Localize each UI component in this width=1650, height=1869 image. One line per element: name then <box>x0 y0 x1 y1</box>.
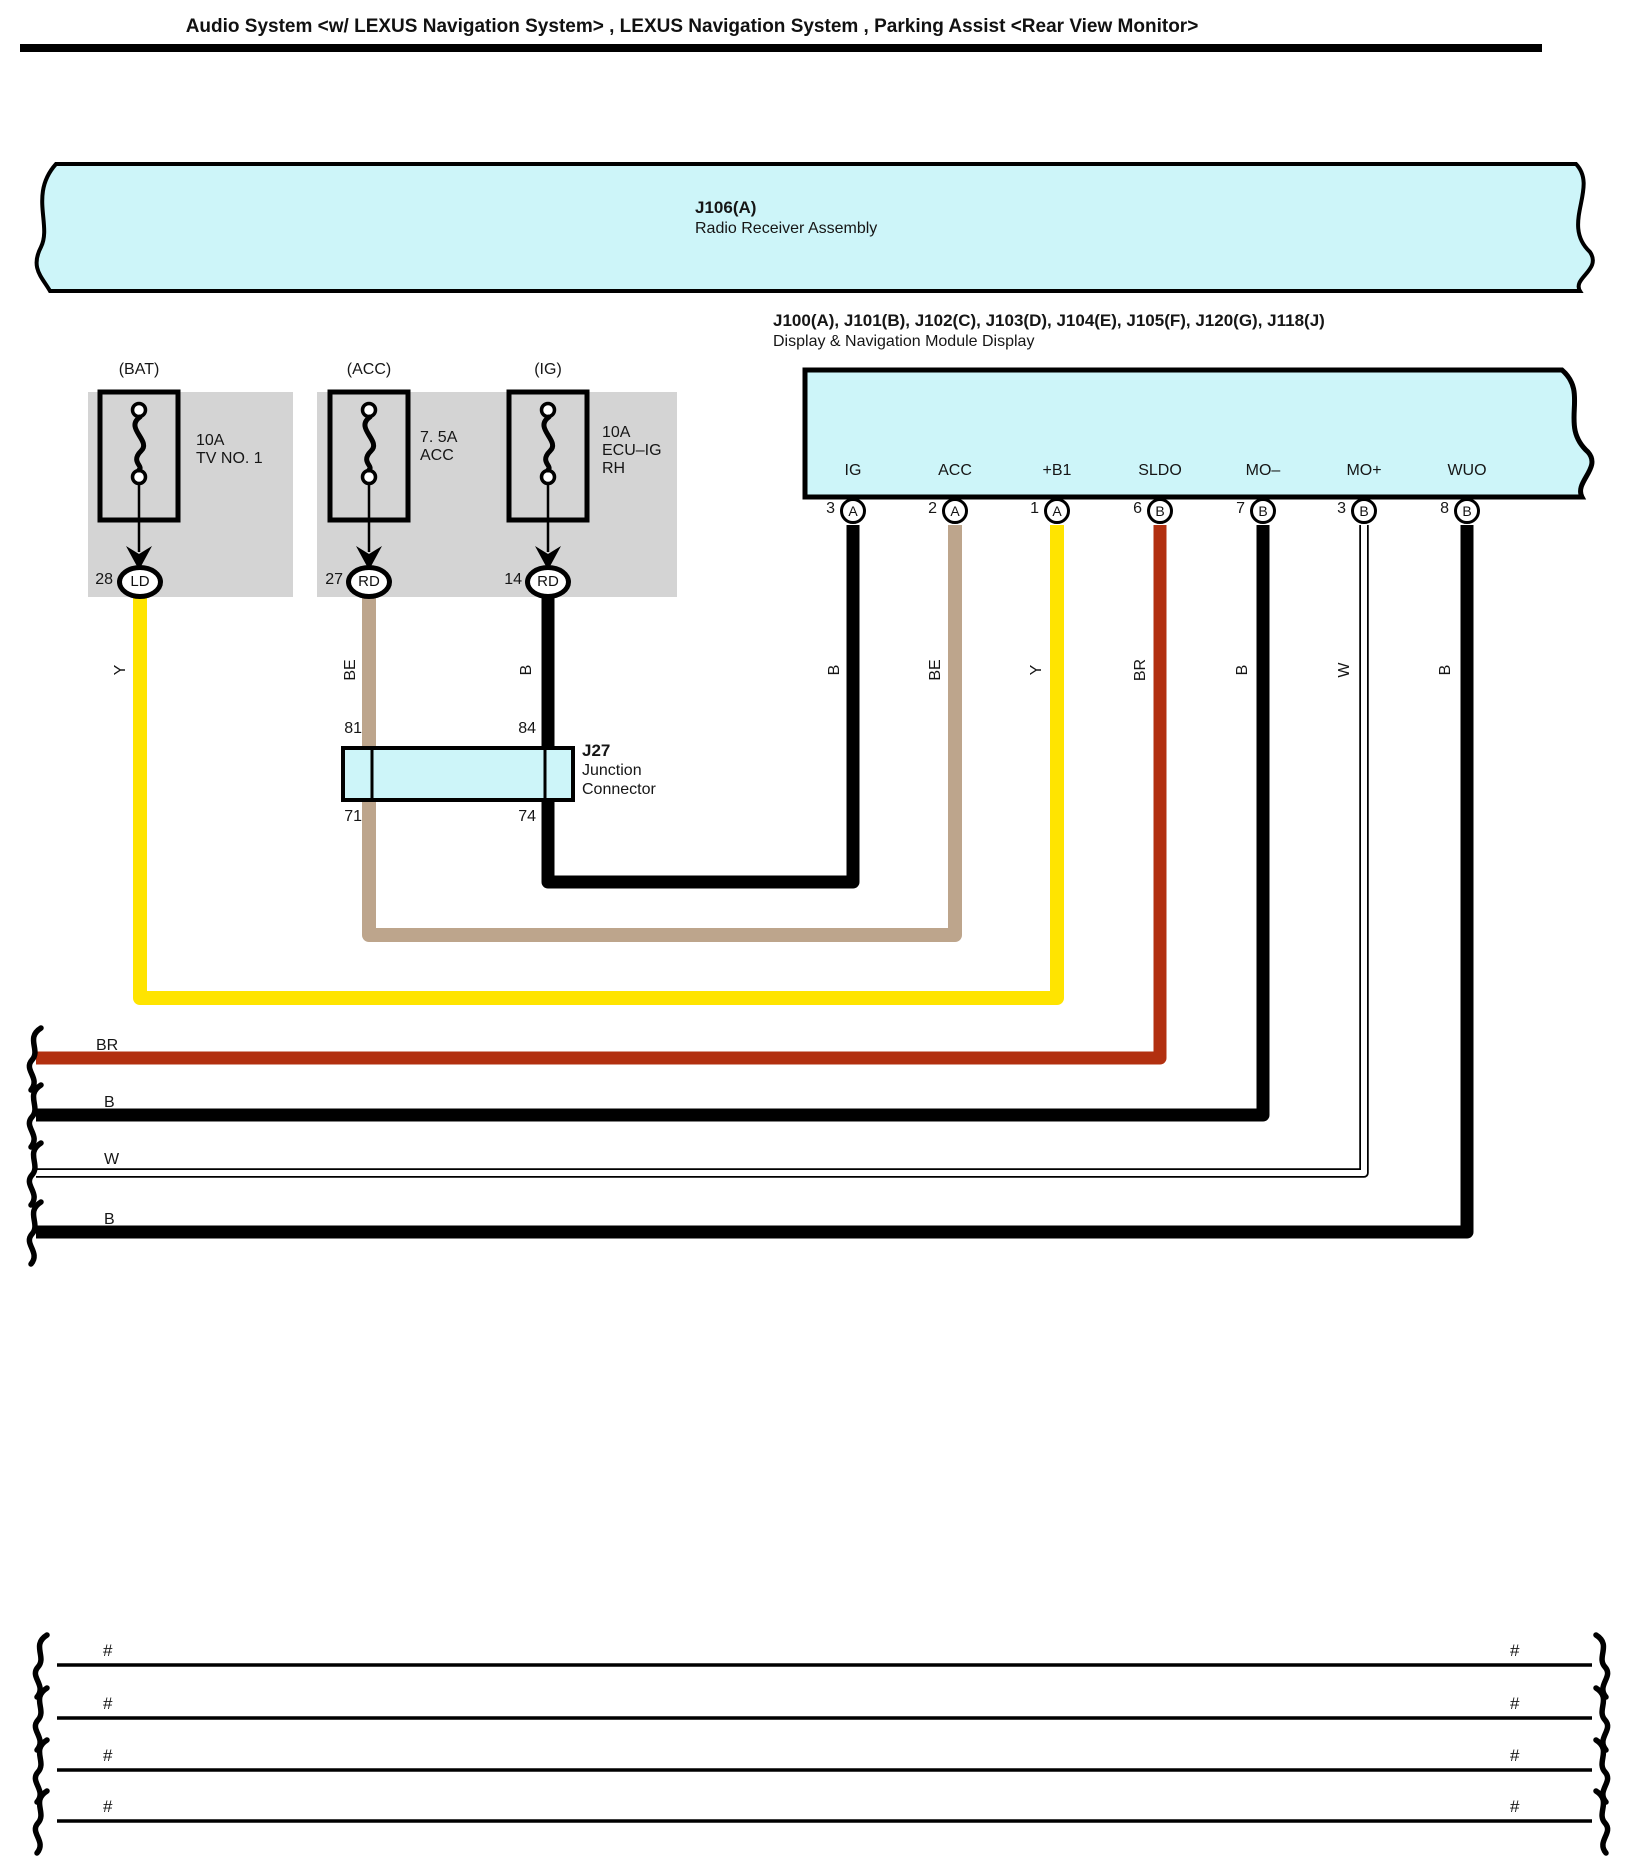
fuse-rating: 10A <box>602 424 630 442</box>
hash-mark: # <box>103 1694 112 1714</box>
title-rule <box>20 44 1542 52</box>
offpage-wire-label-w: W <box>104 1151 119 1169</box>
wire-color-code-be: BE <box>927 648 945 692</box>
connector-circle-b: B <box>1351 498 1377 524</box>
connector-circle-a: A <box>1044 498 1070 524</box>
junction-type: Connector <box>582 781 656 799</box>
hash-mark: # <box>103 1641 112 1661</box>
fuse-name: ACC <box>420 447 454 465</box>
connector-circle-b: B <box>1147 498 1173 524</box>
wire-b-ig <box>548 525 853 882</box>
wire-b-mo-minus <box>36 525 1263 1115</box>
fuse-rating: 10A <box>196 432 224 450</box>
junction-pin-74: 74 <box>506 808 536 826</box>
junction-pin-84: 84 <box>506 720 536 738</box>
pin-label-b1: +B1 <box>1017 462 1097 480</box>
terminal-number: 28 <box>77 571 113 589</box>
pin-number: 8 <box>1425 500 1449 518</box>
hash-mark: # <box>1510 1746 1519 1766</box>
fuse-acc-symbol <box>330 392 408 570</box>
banner-code: J106(A) <box>695 198 756 218</box>
diagram-canvas <box>0 0 1650 1869</box>
offpage-wire-label-b: B <box>104 1211 115 1229</box>
fuse-name: ECU–IG <box>602 442 662 460</box>
offpage-wire-label-br: BR <box>96 1037 118 1055</box>
page-title: Audio System <w/ LEXUS Navigation System… <box>0 16 1384 38</box>
terminal-number: 14 <box>486 571 522 589</box>
pin-label-mo-minus: MO– <box>1223 462 1303 480</box>
hash-mark: # <box>1510 1641 1519 1661</box>
wire-color-code-be: BE <box>342 648 360 692</box>
pin-number: 3 <box>1322 500 1346 518</box>
pin-label-acc: ACC <box>915 462 995 480</box>
cut-mark <box>35 1791 47 1853</box>
hash-mark: # <box>1510 1797 1519 1817</box>
terminal-oval-ld: LD <box>117 565 163 599</box>
pin-number: 7 <box>1221 500 1245 518</box>
wire-be-acc <box>369 525 955 935</box>
pin-number: 3 <box>811 500 835 518</box>
display-module-codes: J100(A), J101(B), J102(C), J103(D), J104… <box>773 311 1325 331</box>
wire-color-code-br: BR <box>1132 648 1150 692</box>
connector-circle-a: A <box>840 498 866 524</box>
fuse-bat-symbol <box>100 392 178 570</box>
pin-label-mo-plus: MO+ <box>1324 462 1404 480</box>
fuse-name: RH <box>602 460 625 478</box>
hash-mark: # <box>103 1797 112 1817</box>
fuse-source-acc: (ACC) <box>329 361 409 379</box>
connector-circle-b: B <box>1454 498 1480 524</box>
connector-circle-a: A <box>942 498 968 524</box>
junction-type: Junction <box>582 762 642 780</box>
terminal-oval-rd: RD <box>525 565 571 599</box>
hash-mark: # <box>1510 1694 1519 1714</box>
junction-pin-71: 71 <box>330 808 362 826</box>
junction-pin-81: 81 <box>330 720 362 738</box>
wire-color-code-y: Y <box>112 648 130 692</box>
junction-connector-box <box>343 748 573 800</box>
fuse-source-bat: (BAT) <box>99 361 179 379</box>
wire-color-code-b: B <box>1234 648 1252 692</box>
fuse-source-ig: (IG) <box>508 361 588 379</box>
junction-code: J27 <box>582 741 610 761</box>
display-module-name: Display & Navigation Module Display <box>773 333 1034 351</box>
wire-color-code-y: Y <box>1028 648 1046 692</box>
pin-number: 6 <box>1118 500 1142 518</box>
banner-name: Radio Receiver Assembly <box>695 220 877 238</box>
pin-number: 2 <box>913 500 937 518</box>
fuse-name: TV NO. 1 <box>196 450 263 468</box>
fuse-rating: 7. 5A <box>420 429 457 447</box>
wire-color-code-b: B <box>1437 648 1455 692</box>
cut-mark <box>1596 1791 1608 1853</box>
pin-label-ig: IG <box>813 462 893 480</box>
pin-label-sldo: SLDO <box>1120 462 1200 480</box>
wire-color-code-b: B <box>826 648 844 692</box>
connector-circle-b: B <box>1250 498 1276 524</box>
wire-color-code-b: B <box>518 648 536 692</box>
hash-mark: # <box>103 1746 112 1766</box>
pin-number: 1 <box>1015 500 1039 518</box>
offpage-wire-label-b: B <box>104 1094 115 1112</box>
terminal-number: 27 <box>307 571 343 589</box>
wire-color-code-w: W <box>1336 648 1354 692</box>
pin-label-wuo: WUO <box>1427 462 1507 480</box>
wiring-diagram-page: Audio System <w/ LEXUS Navigation System… <box>0 0 1650 1869</box>
fuse-ig-symbol <box>509 392 587 570</box>
terminal-oval-rd: RD <box>346 565 392 599</box>
